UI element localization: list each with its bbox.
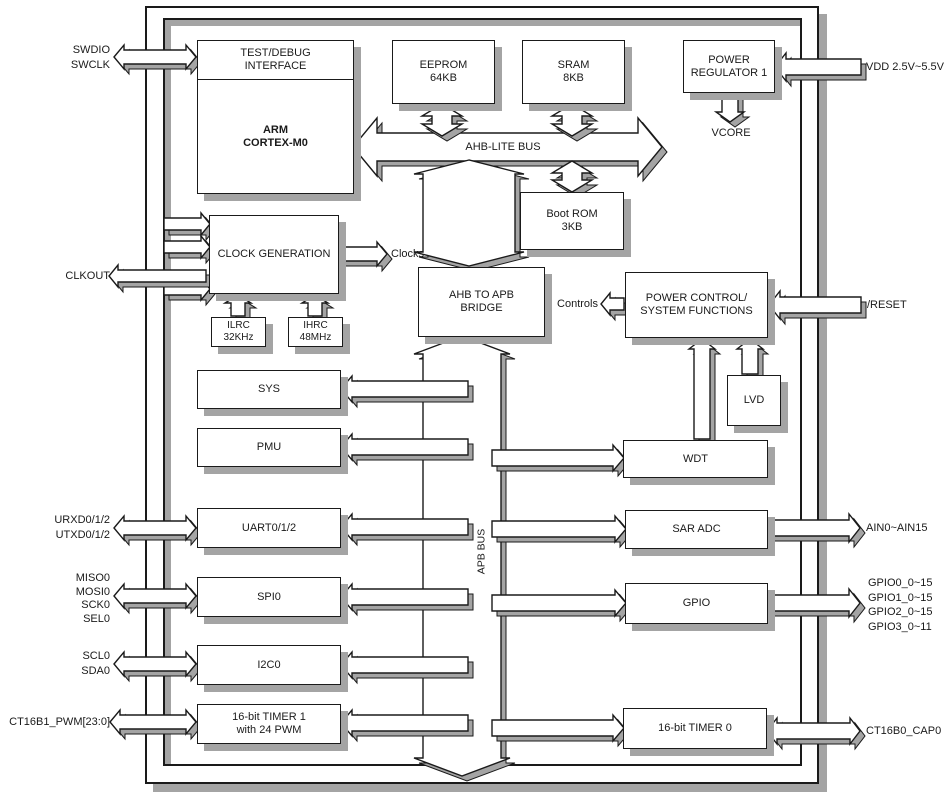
pin-label-reset: /RESET xyxy=(867,298,907,313)
pin-label-ct16b0-cap0: CT16B0_CAP0 xyxy=(866,724,941,739)
block-gpio: GPIO xyxy=(625,583,768,624)
vcore-label: VCORE xyxy=(700,126,762,141)
pin-label-ct16b1-pwm: CT16B1_PWM[23:0] xyxy=(9,715,110,730)
clocks-label: Clocks xyxy=(391,247,424,262)
ahb-lite-bus-label: AHB-LITE BUS xyxy=(428,140,578,155)
pin-label-ain: AIN0~AIN15 xyxy=(866,521,927,536)
pin-label-gpio-ports: GPIO0_0~15 GPIO1_0~15 GPIO2_0~15 GPIO3_0… xyxy=(868,576,933,634)
block-power-control: POWER CONTROL/ SYSTEM FUNCTIONS xyxy=(625,272,768,338)
pin-label-scl-sda: SCL0 SDA0 xyxy=(81,649,110,679)
block-wdt: WDT xyxy=(623,440,768,478)
block-test-debug-interface: TEST/DEBUG INTERFACE xyxy=(198,41,353,80)
block-power-regulator: POWER REGULATOR 1 xyxy=(683,40,775,93)
block-i2c: I2C0 xyxy=(197,645,341,685)
block-spi: SPI0 xyxy=(197,577,341,617)
block-ihrc: IHRC 48MHz xyxy=(288,317,343,347)
block-sys: SYS xyxy=(197,370,341,409)
block-sram: SRAM 8KB xyxy=(522,40,625,104)
block-eeprom: EEPROM 64KB xyxy=(392,40,495,104)
wire-ahb-to-bridge xyxy=(414,160,524,266)
block-arm-cortex-m0: ARM CORTEX-M0 xyxy=(198,80,353,193)
pin-label-vdd: VDD 2.5V~5.5V xyxy=(866,60,944,75)
block-ilrc: ILRC 32KHz xyxy=(211,317,266,347)
pin-label-clkout: CLKOUT xyxy=(65,269,110,284)
pin-label-swdio-swclk: SWDIO SWCLK xyxy=(71,43,110,73)
block-uart: UART0/1/2 xyxy=(197,508,341,548)
block-boot-rom: Boot ROM 3KB xyxy=(520,192,624,250)
bus-and-arrow-wiring xyxy=(0,0,947,812)
block-lvd: LVD xyxy=(727,375,781,426)
block-ahb-apb-bridge: AHB TO APB BRIDGE xyxy=(418,267,545,337)
pin-label-urxd-utxd: URXD0/1/2 UTXD0/1/2 xyxy=(54,513,110,543)
block-pmu: PMU xyxy=(197,428,341,467)
apb-bus-label: APB BUS xyxy=(475,525,490,579)
block-sar-adc: SAR ADC xyxy=(625,510,768,549)
block-clock-generation: CLOCK GENERATION xyxy=(209,215,339,294)
block-cpu-group: TEST/DEBUG INTERFACE ARM CORTEX-M0 xyxy=(197,40,354,194)
mcu-block-diagram: TEST/DEBUG INTERFACE ARM CORTEX-M0 EEPRO… xyxy=(0,0,947,812)
controls-label: Controls xyxy=(557,297,598,312)
pin-label-spi-pins: MISO0 MOSI0 SCK0 SEL0 xyxy=(76,572,110,626)
block-timer1: 16-bit TIMER 1 with 24 PWM xyxy=(197,704,341,744)
block-timer0: 16-bit TIMER 0 xyxy=(623,708,767,749)
